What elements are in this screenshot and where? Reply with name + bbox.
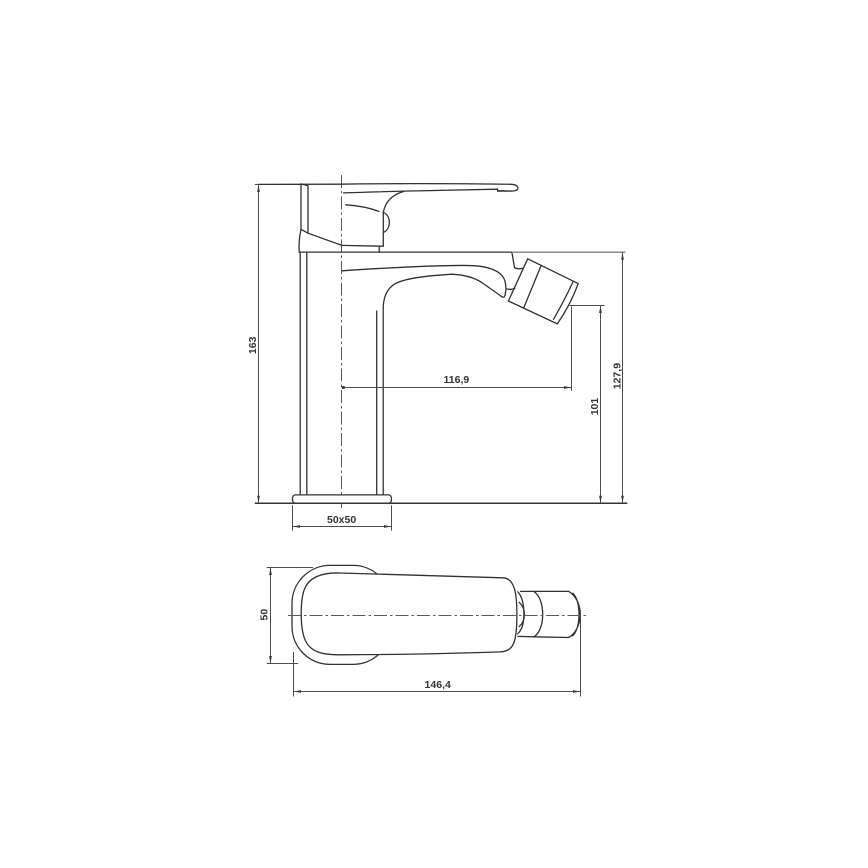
svg-text:50x50: 50x50 (327, 514, 356, 526)
svg-text:50: 50 (259, 609, 271, 621)
svg-text:146,4: 146,4 (425, 679, 451, 691)
svg-text:127,9: 127,9 (611, 363, 623, 389)
svg-text:163: 163 (247, 336, 259, 354)
svg-text:116,9: 116,9 (444, 374, 470, 386)
svg-text:101: 101 (589, 398, 601, 416)
